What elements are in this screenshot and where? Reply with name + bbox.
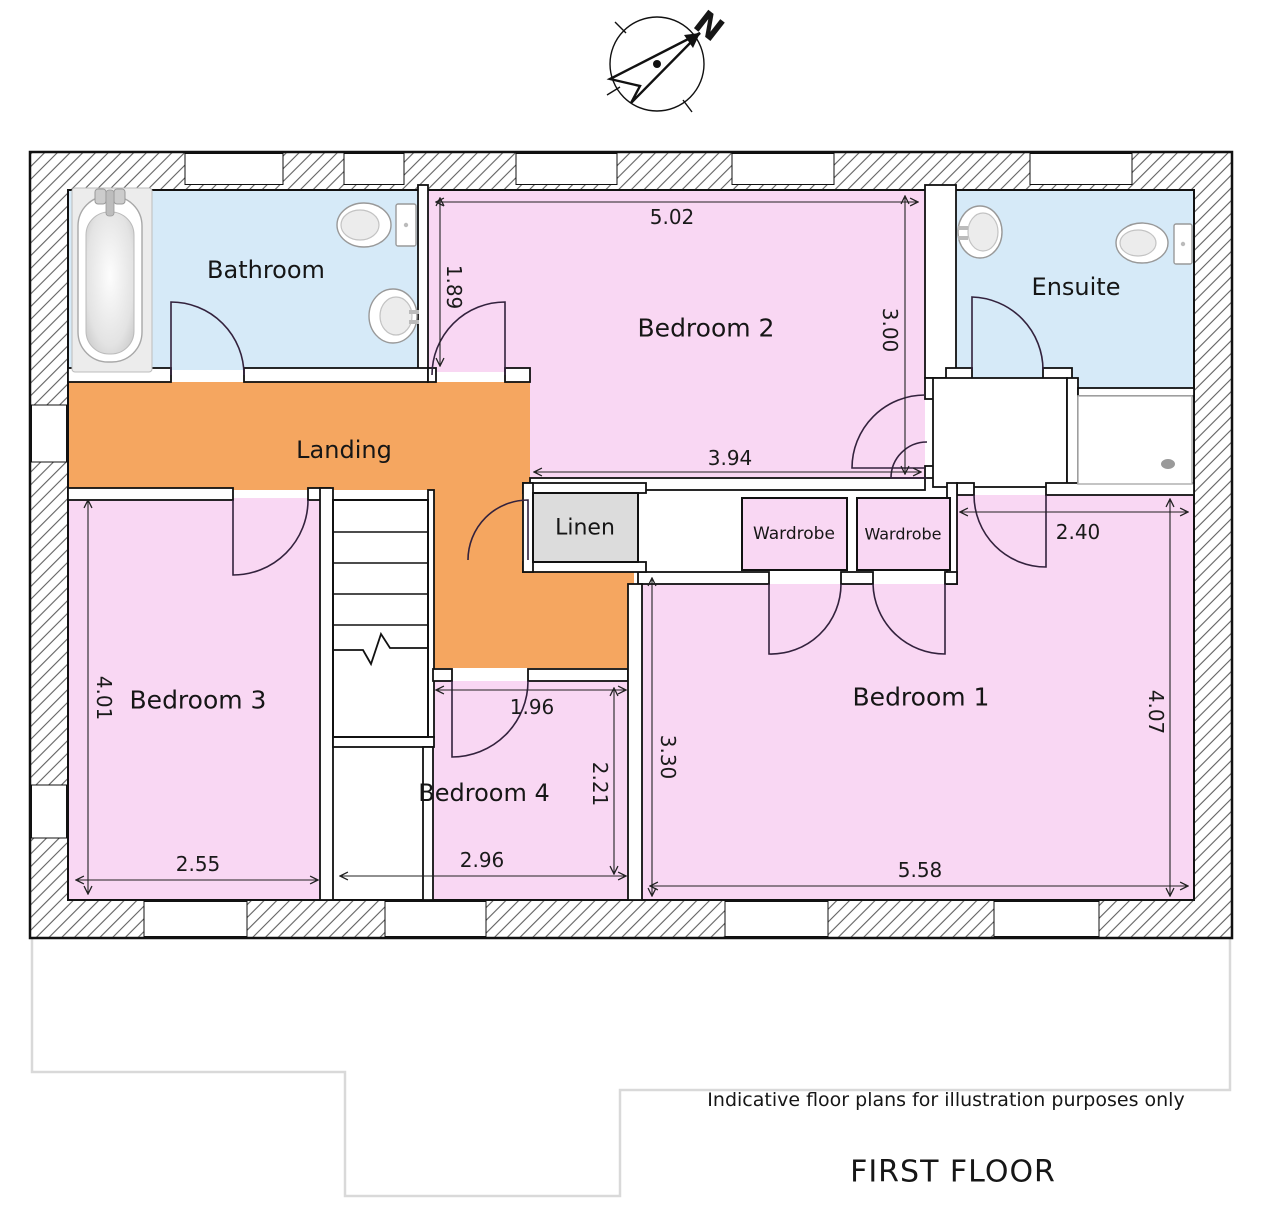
dim-bedroom2-right: 3.00 <box>878 308 902 353</box>
wall-segment <box>957 483 974 495</box>
disclaimer-text: Indicative floor plans for illustration … <box>707 1089 1184 1111</box>
dim-bedroom3-left: 4.01 <box>92 676 116 721</box>
window <box>725 902 828 937</box>
wall-segment <box>418 185 428 378</box>
wall-segment <box>628 584 642 900</box>
toilet-icon <box>1116 223 1192 264</box>
window <box>344 154 404 185</box>
window <box>1030 154 1132 185</box>
dim-bedroom4-bottom: 2.96 <box>460 848 505 872</box>
room-label-bedroom2: Bedroom 2 <box>638 314 775 343</box>
room-label-bathroom: Bathroom <box>207 256 325 284</box>
wall-segment <box>423 747 433 900</box>
window <box>994 902 1099 937</box>
window <box>732 154 834 185</box>
room-label-wardrobe-left: Wardrobe <box>753 524 835 544</box>
wall-segment <box>523 562 646 572</box>
window <box>144 902 247 937</box>
window <box>32 405 67 462</box>
room-label-linen: Linen <box>555 516 615 541</box>
room-label-bedroom4: Bedroom 4 <box>418 779 549 807</box>
floor-plan-canvas: 5.02 1.89 3.00 3.94 2.40 4.07 3.30 5.58 … <box>0 0 1280 1217</box>
stairs <box>333 500 428 737</box>
wall-segment <box>68 488 233 500</box>
dim-bedroom2-left: 1.89 <box>442 265 466 310</box>
dim-bedroom4-right: 2.21 <box>588 762 612 807</box>
window <box>32 785 67 838</box>
room-label-wardrobe-right: Wardrobe <box>864 525 941 544</box>
floor-title: FIRST FLOOR <box>850 1155 1056 1190</box>
room-label-landing: Landing <box>296 436 392 464</box>
wall-segment <box>945 572 957 584</box>
wall-segment <box>528 669 628 681</box>
wall-segment <box>523 483 646 493</box>
wall-segment <box>638 572 769 584</box>
wall-segment <box>505 368 530 382</box>
wall-segment <box>244 368 428 382</box>
wall-segment <box>925 185 956 378</box>
dim-bedroom4-top: 1.96 <box>510 695 555 719</box>
wall-segment <box>1078 388 1194 396</box>
dim-bedroom2-bottom: 3.94 <box>708 446 753 470</box>
window <box>385 902 486 937</box>
dim-bedroom1-right: 4.07 <box>1144 690 1168 735</box>
room-label-bedroom3: Bedroom 3 <box>130 686 267 715</box>
dim-bedroom3-bottom: 2.55 <box>176 852 221 876</box>
floor-plan-page: 5.02 1.89 3.00 3.94 2.40 4.07 3.30 5.58 … <box>0 0 1280 1217</box>
dim-bedroom1-left: 3.30 <box>656 735 680 780</box>
window <box>185 154 283 185</box>
room-label-ensuite: Ensuite <box>1032 273 1121 301</box>
dim-bedroom1-top: 2.40 <box>1056 520 1101 544</box>
window <box>516 154 617 185</box>
bath-icon <box>72 188 152 372</box>
room-label-bedroom1: Bedroom 1 <box>853 683 990 712</box>
wall-segment <box>933 378 1067 487</box>
wall-segment <box>333 737 434 747</box>
dim-bedroom2-top: 5.02 <box>650 205 695 229</box>
north-compass-icon: N <box>607 3 731 112</box>
wall-segment <box>320 488 333 900</box>
toilet-icon <box>337 203 416 247</box>
sink-icon <box>958 206 1002 258</box>
shower-tray-icon <box>1078 396 1192 484</box>
wall-segment <box>841 572 873 584</box>
wall-segment <box>433 669 452 681</box>
wall-segment <box>1067 378 1078 487</box>
dim-bedroom1-bottom: 5.58 <box>898 858 943 882</box>
